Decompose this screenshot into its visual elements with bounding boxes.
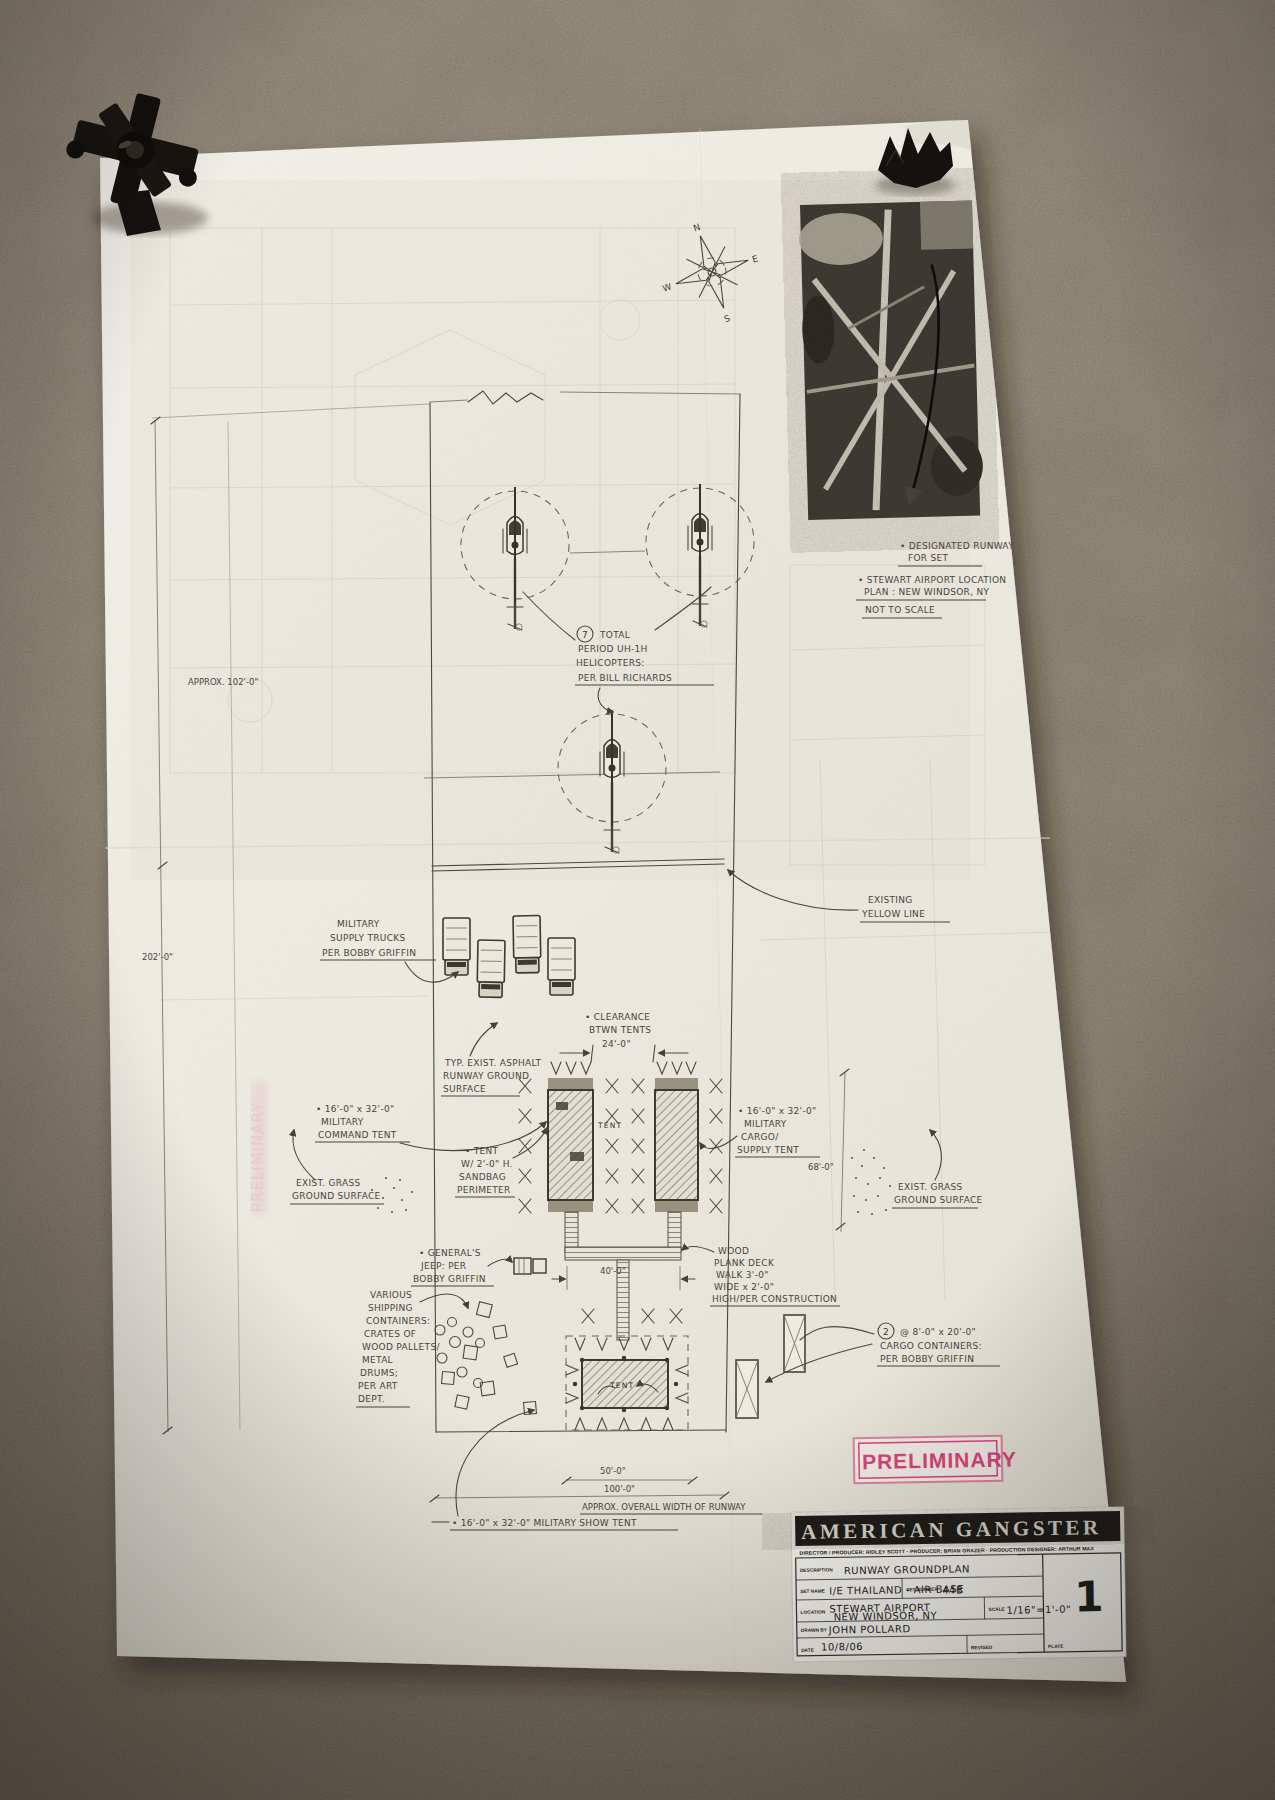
photo-of-pinned-groundplan: PRELIMINARY • DESIGNATED RUNWAY FOR SET …	[0, 0, 1275, 1800]
scene: PRELIMINARY • DESIGNATED RUNWAY FOR SET …	[0, 0, 1275, 1800]
photo-vignette	[0, 0, 1275, 1800]
